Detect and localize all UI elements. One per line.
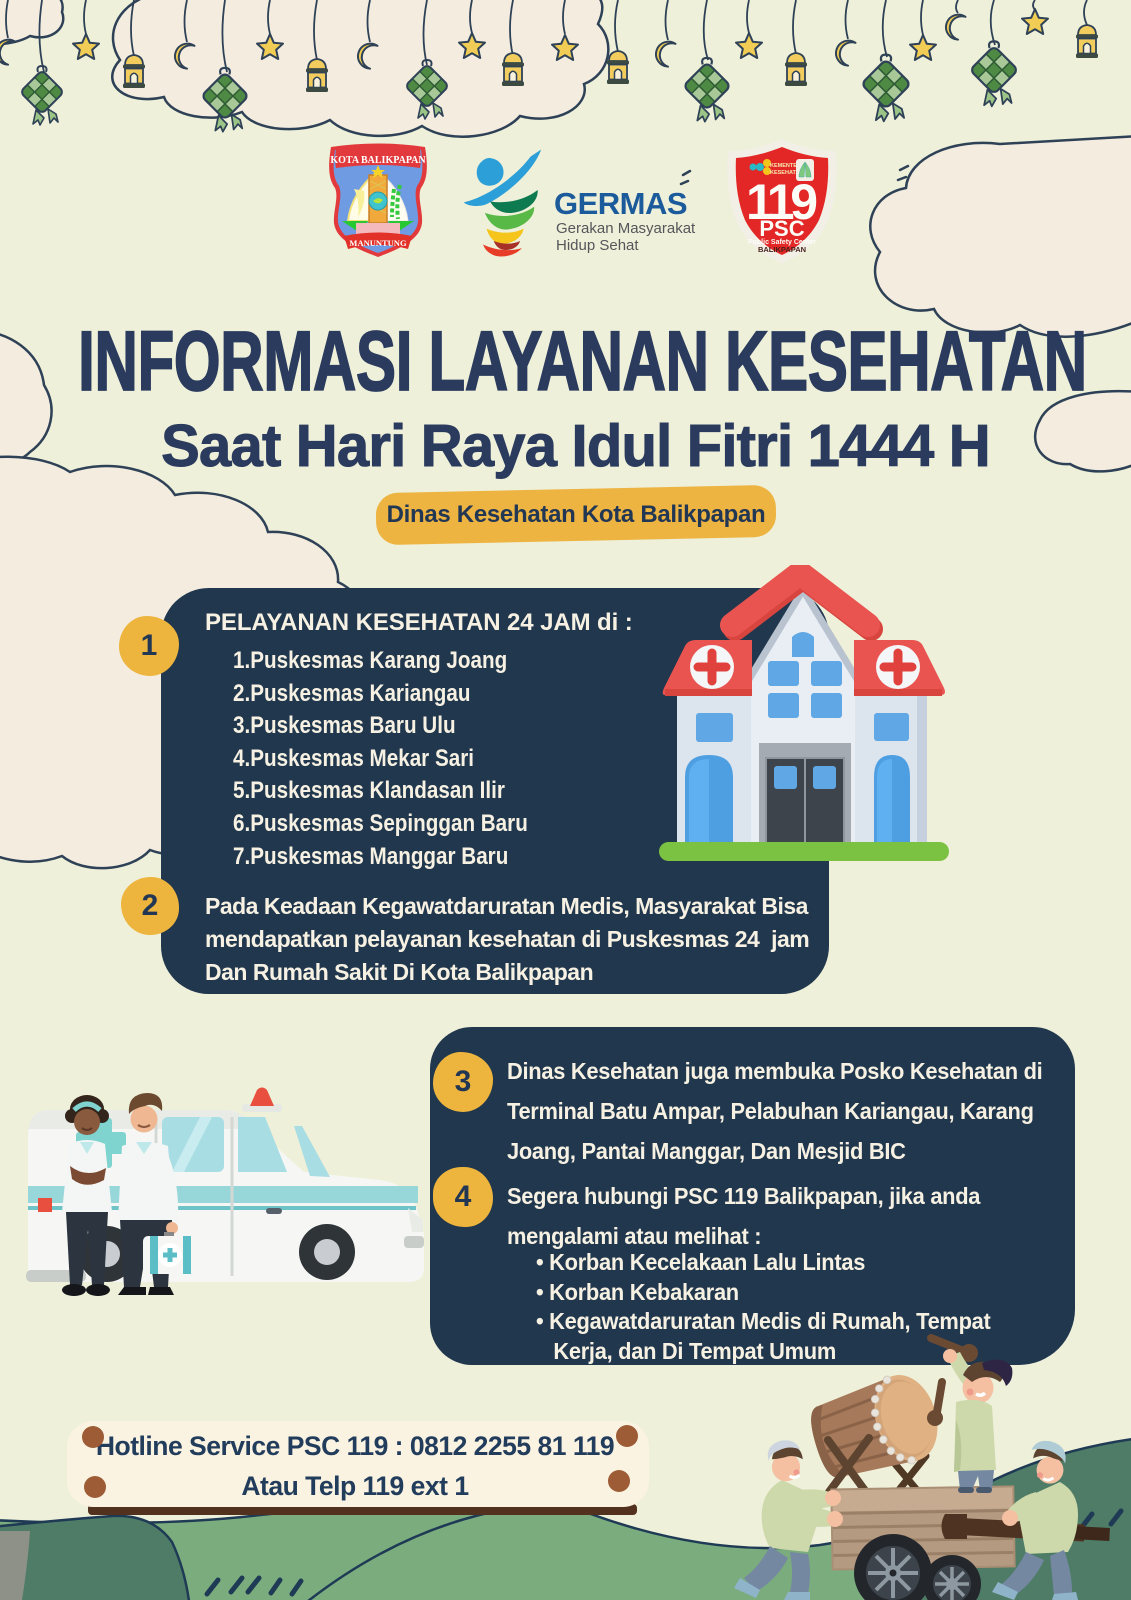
svg-text:PSC: PSC	[759, 216, 804, 241]
svg-text:GERMAS: GERMAS	[554, 186, 687, 221]
svg-text:Hidup Sehat: Hidup Sehat	[556, 237, 639, 254]
svg-text:KOTA BALIKPAPAN: KOTA BALIKPAPAN	[330, 155, 426, 166]
svg-text:Gerakan Masyarakat: Gerakan Masyarakat	[556, 220, 696, 237]
svg-text:MANUNTUNG: MANUNTUNG	[349, 238, 407, 248]
svg-text:BALIKPAPAN: BALIKPAPAN	[758, 245, 806, 254]
